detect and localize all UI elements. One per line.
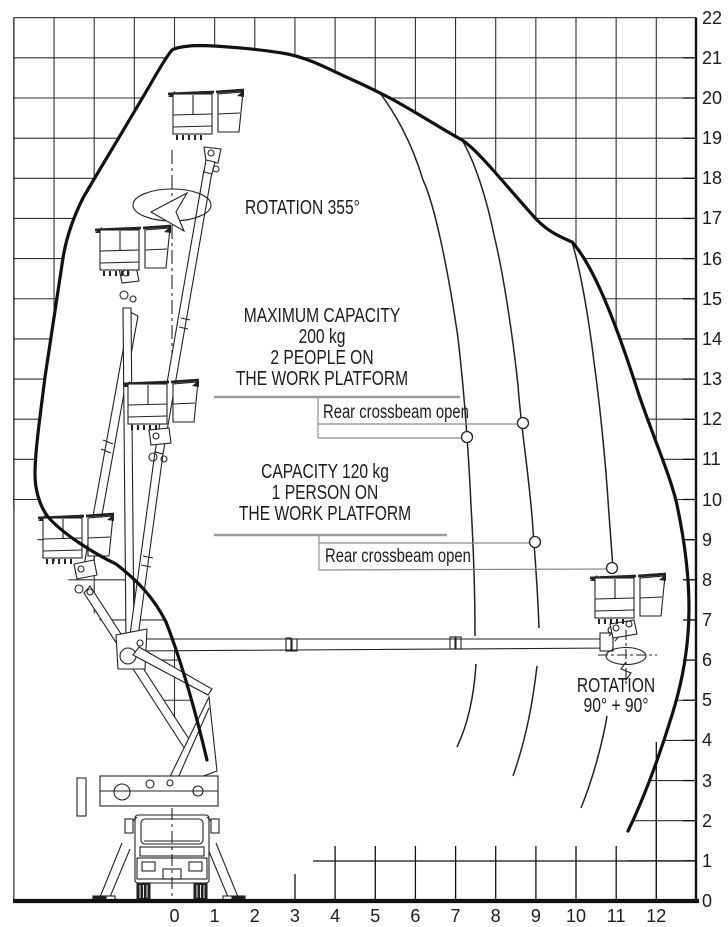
y-axis-label-19: 19	[702, 128, 728, 148]
x-axis-label-8: 8	[481, 906, 511, 926]
y-axis-label-21: 21	[702, 48, 728, 68]
max-capacity-line-3: 2 PEOPLE ON	[205, 348, 439, 369]
basket-mid-left	[123, 380, 199, 430]
y-axis-label-22: 22	[702, 8, 728, 28]
truck-cab	[125, 808, 219, 901]
y-axis-label-14: 14	[702, 329, 728, 349]
y-axis-label-0: 0	[702, 891, 728, 911]
rotation-355-label: ROTATION 355°	[245, 198, 360, 219]
rotation-90-90-label: ROTATION 90° + 90°	[554, 676, 679, 716]
capacity-120-label: CAPACITY 120 kg 1 PERSON ON THE WORK PLA…	[208, 462, 442, 525]
y-axis-label-2: 2	[702, 811, 728, 831]
max-capacity-line-1: MAXIMUM CAPACITY	[205, 306, 439, 327]
max-capacity-line-2: 200 kg	[205, 327, 439, 348]
x-axis-label-0: 0	[160, 906, 190, 926]
x-axis-label-11: 11	[601, 906, 631, 926]
max-capacity-label: MAXIMUM CAPACITY 200 kg 2 PEOPLE ON THE …	[205, 306, 439, 390]
capacity-120-line-1: CAPACITY 120 kg	[208, 462, 442, 483]
rotation-90-90-line-2: 90° + 90°	[554, 696, 679, 716]
y-axis-label-1: 1	[702, 851, 728, 871]
basket-upper-left	[95, 226, 171, 276]
capacity-120-line-3: THE WORK PLATFORM	[208, 504, 442, 525]
x-axis-label-4: 4	[320, 906, 350, 926]
x-axis-label-12: 12	[641, 906, 671, 926]
basket-top	[168, 90, 244, 140]
y-axis-label-10: 10	[702, 490, 728, 510]
y-axis-label-7: 7	[702, 610, 728, 630]
basket-right	[590, 574, 666, 624]
x-axis-label-6: 6	[400, 906, 430, 926]
y-axis-label-13: 13	[702, 369, 728, 389]
y-axis-label-12: 12	[702, 409, 728, 429]
rear-crossbeam-open-lower-label: Rear crossbeam open	[325, 548, 471, 565]
y-axis-label-20: 20	[702, 88, 728, 108]
y-axis-label-5: 5	[702, 690, 728, 710]
rear-crossbeam-open-upper-label: Rear crossbeam open	[323, 404, 469, 421]
x-axis-label-7: 7	[441, 906, 471, 926]
y-axis-label-8: 8	[702, 570, 728, 590]
working-envelope-diagram: ROTATION 355° MAXIMUM CAPACITY 200 kg 2 …	[0, 0, 728, 927]
y-axis-label-17: 17	[702, 208, 728, 228]
x-axis-label-3: 3	[280, 906, 310, 926]
x-axis-label-1: 1	[200, 906, 230, 926]
y-axis-label-15: 15	[702, 289, 728, 309]
max-capacity-line-4: THE WORK PLATFORM	[205, 369, 439, 390]
y-axis-label-6: 6	[702, 650, 728, 670]
y-axis-label-9: 9	[702, 530, 728, 550]
right-axis-ticks	[683, 58, 696, 861]
x-axis-label-5: 5	[360, 906, 390, 926]
x-axis-label-9: 9	[521, 906, 551, 926]
y-axis-label-3: 3	[702, 771, 728, 791]
x-axis-label-2: 2	[240, 906, 270, 926]
y-axis-label-18: 18	[702, 168, 728, 188]
capacity-120-line-2: 1 PERSON ON	[208, 483, 442, 504]
y-axis-label-11: 11	[702, 449, 728, 469]
y-axis-label-16: 16	[702, 249, 728, 269]
y-axis-label-4: 4	[702, 730, 728, 750]
rotation-90-90-line-1: ROTATION	[554, 676, 679, 696]
x-axis-label-10: 10	[561, 906, 591, 926]
